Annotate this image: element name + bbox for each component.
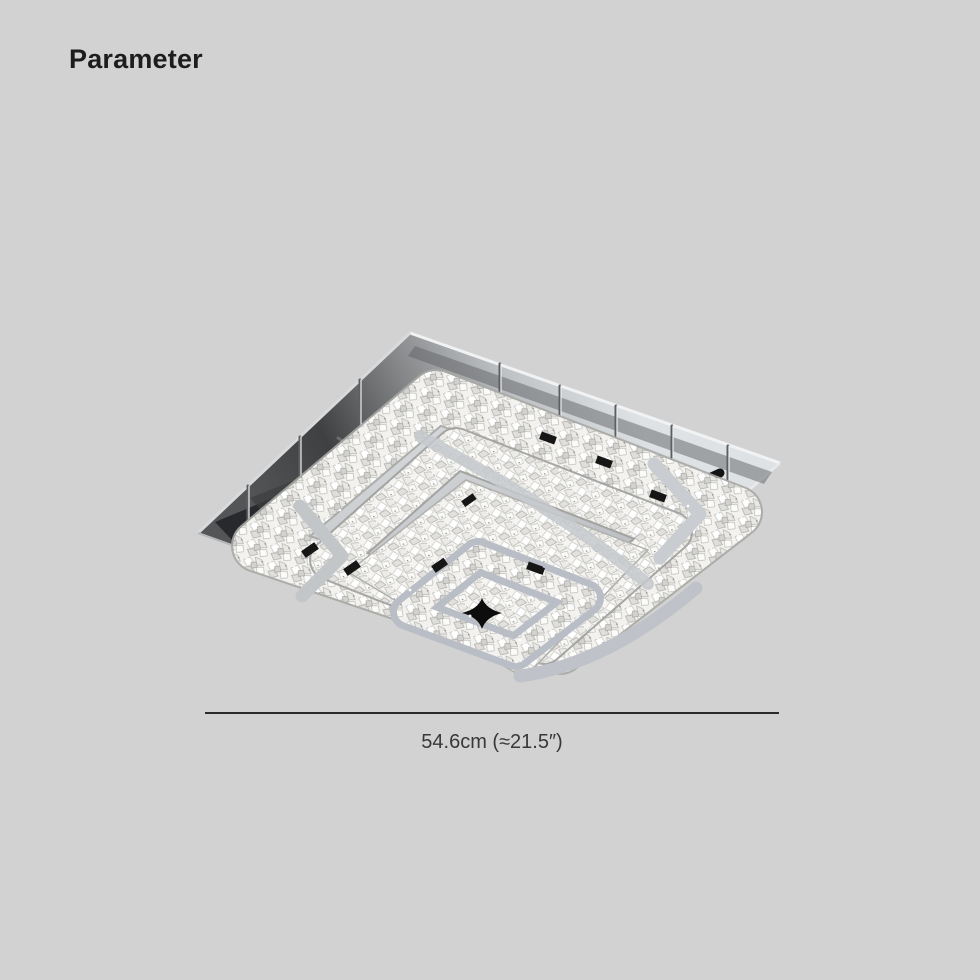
dimension-line (205, 712, 779, 714)
dimension-width-label: 54.6cm (≈21.5″) (205, 731, 779, 754)
product-figure: 54.6cm (≈21.5″) (0, 0, 980, 980)
crystal-ceiling-light-image (190, 310, 790, 705)
parameter-section: Parameter (0, 0, 980, 980)
